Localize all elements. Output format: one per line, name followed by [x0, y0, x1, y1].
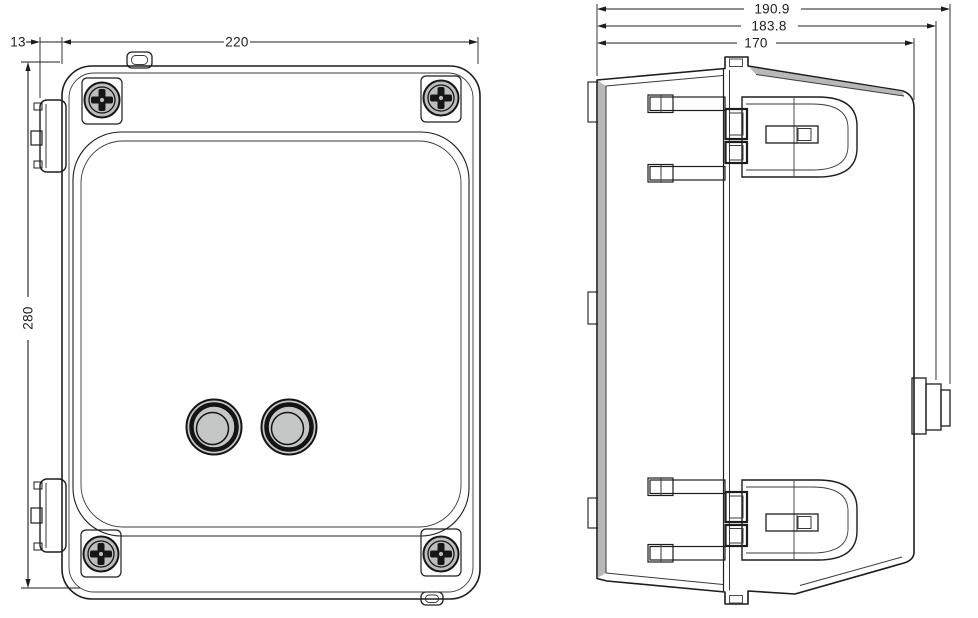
front-view: 13 220 280 [10, 35, 480, 606]
dim-side-body-depth-label: 170 [744, 36, 767, 51]
technical-drawing-canvas: 13 220 280 [0, 0, 978, 618]
front-enclosure-body [62, 66, 480, 599]
drawing-svg: 13 220 280 [0, 0, 978, 618]
phillips-screw-icon [85, 83, 120, 118]
side-latch-knob-icon [912, 378, 950, 434]
side-dimensions: 190.9 183.8 170 [597, 2, 950, 385]
dimension-side-hinge-depth: 183.8 [597, 19, 936, 34]
front-hinge-top-icon [31, 100, 66, 172]
front-buttons [187, 400, 317, 455]
dimension-side-overall-depth: 190.9 [597, 2, 950, 17]
dimension-front-width: 220 [62, 35, 478, 50]
pushbutton-icon [262, 400, 317, 455]
side-hinge-top-icon [648, 95, 857, 182]
front-hinge-bottom-icon [31, 479, 66, 552]
dim-front-hinge-offset-label: 13 [10, 35, 26, 50]
dimension-hinge-offset: 13 [10, 35, 62, 50]
side-hinge-bottom-icon [648, 478, 857, 562]
front-dimensions: 13 220 280 [10, 35, 478, 589]
dim-front-width-label: 220 [225, 35, 248, 50]
dim-side-hinge-depth-label: 183.8 [751, 19, 786, 34]
front-corner-screws [81, 76, 461, 577]
phillips-screw-icon [424, 81, 459, 116]
dim-side-overall-depth-label: 190.9 [754, 2, 789, 17]
pushbutton-icon [187, 400, 242, 455]
side-view: 190.9 183.8 170 [588, 2, 950, 605]
dim-front-height-label: 280 [21, 306, 36, 329]
phillips-screw-icon [424, 537, 459, 572]
side-enclosure-body [597, 57, 914, 604]
dimension-side-body-depth: 170 [597, 36, 914, 51]
dimension-front-height: 280 [21, 62, 36, 588]
phillips-screw-icon [84, 537, 119, 572]
